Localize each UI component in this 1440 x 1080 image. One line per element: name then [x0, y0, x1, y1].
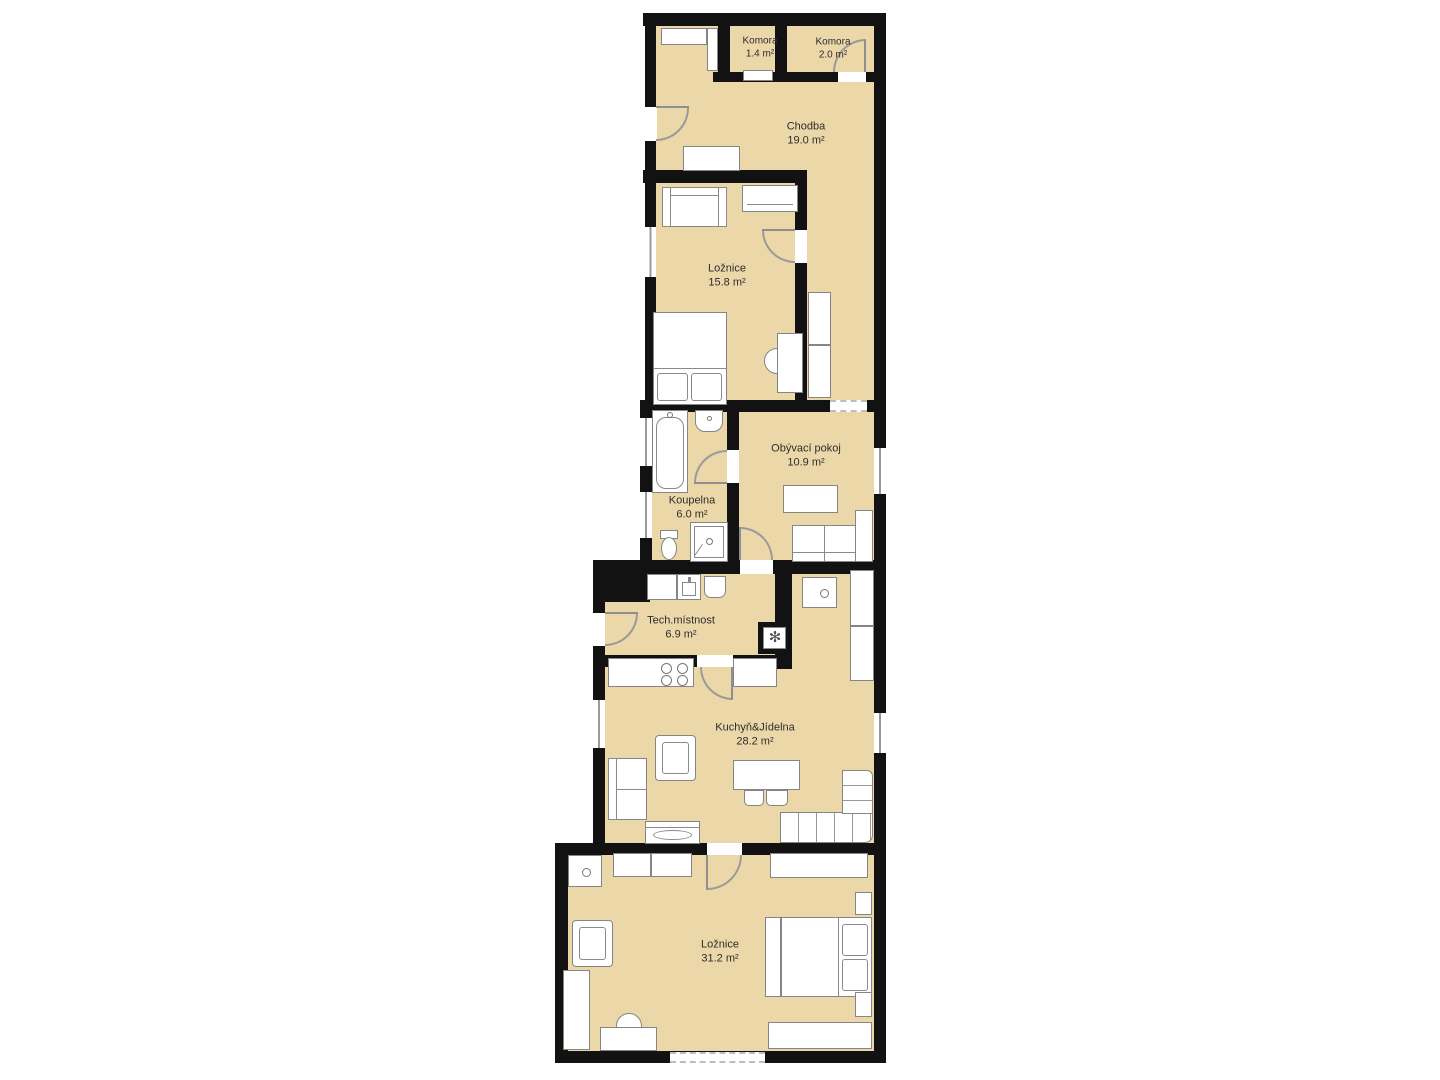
- door-gap-bathroom: [727, 450, 739, 483]
- cabinet: [768, 1022, 872, 1049]
- burner-icon: [677, 675, 688, 686]
- room-name: Ložnice: [708, 262, 746, 276]
- nightstand: [855, 992, 872, 1017]
- room-area: 6.0 m²: [669, 508, 716, 522]
- window-bedroom1-left: [645, 227, 656, 277]
- pillow: [842, 959, 868, 991]
- wardrobe: [808, 345, 831, 398]
- room-name: Tech.místnost: [647, 614, 715, 628]
- blanket-line: [838, 918, 839, 996]
- dining-chair: [766, 790, 788, 806]
- cabinet: [647, 574, 677, 600]
- room-label-chodba: Chodba 19.0 m²: [787, 120, 826, 149]
- door-leaf-tech-entry: [605, 612, 638, 614]
- cabinet: [770, 853, 868, 878]
- wall-top: [643, 13, 886, 26]
- burner-icon: [661, 663, 672, 674]
- cabinet: [651, 853, 692, 877]
- sofa: [608, 758, 647, 820]
- window-living-right: [874, 448, 886, 494]
- floor-plan: ✻: [0, 0, 1440, 1080]
- armchair: [655, 735, 696, 781]
- room-name: Komora: [815, 37, 850, 50]
- room-label-loznice-bot: Ložnice 31.2 m²: [701, 938, 739, 967]
- toilet-bowl: [661, 537, 677, 560]
- window-kitchen-left: [593, 700, 605, 748]
- sofa: [662, 187, 727, 227]
- room-area: 15.8 m²: [708, 276, 746, 290]
- coffee-table: [783, 485, 838, 513]
- door-gap-closet2: [838, 72, 866, 82]
- door-leaf-closet2: [864, 40, 866, 72]
- shower-drain-icon: [706, 538, 713, 545]
- window-bedroom2-bottom: [670, 1052, 765, 1063]
- door-leaf-entry: [656, 106, 689, 108]
- bathtub: [652, 410, 688, 493]
- wardrobe: [808, 292, 831, 345]
- faucet-icon: [688, 577, 691, 583]
- boiler: [802, 577, 837, 608]
- room-label-koupelna: Koupelna 6.0 m²: [669, 494, 716, 523]
- piano: [645, 821, 700, 844]
- burner-icon: [677, 663, 688, 674]
- dresser-top-line: [747, 204, 793, 205]
- room-label-kuchyn: Kuchyň&Jídelna 28.2 m²: [715, 721, 795, 750]
- shower: [690, 522, 728, 562]
- sliding-door-closet1: [743, 70, 773, 81]
- wall-bedroom1-top: [643, 170, 807, 183]
- bed-bench: [765, 917, 781, 997]
- armchair: [572, 920, 613, 967]
- sofa-arm: [662, 187, 671, 227]
- utility-sink: [677, 574, 701, 600]
- door-gap-bedroom2: [707, 843, 742, 855]
- drain-icon: [707, 416, 712, 421]
- desk: [777, 333, 803, 393]
- bed: [781, 917, 872, 997]
- sofa-cushion-line: [617, 789, 646, 790]
- room-name: Ložnice: [701, 938, 739, 952]
- room-name: Kuchyň&Jídelna: [715, 721, 795, 735]
- cabinet: [661, 28, 707, 45]
- door-leaf-bedroom1: [762, 229, 795, 231]
- room-area: 6.9 m²: [647, 628, 715, 642]
- kitchen-counter: [850, 570, 874, 626]
- room-area: 31.2 m²: [701, 952, 739, 966]
- door-gap-tech-entry: [593, 613, 605, 646]
- desk: [600, 1027, 657, 1051]
- sink: [695, 410, 723, 432]
- room-area: 28.2 m²: [715, 735, 795, 749]
- wall-right: [874, 13, 886, 1063]
- stove-dial-icon: [582, 868, 591, 877]
- dresser: [742, 185, 798, 212]
- daybed: [792, 525, 857, 562]
- corner-sofa: [842, 770, 873, 814]
- burner-icon: [661, 675, 672, 686]
- room-label-komora2: Komora 2.0 m²: [815, 37, 850, 62]
- dining-table: [733, 760, 800, 790]
- cabinet: [613, 853, 651, 877]
- pillow: [842, 924, 868, 956]
- nightstand: [855, 892, 872, 915]
- pillow: [691, 373, 722, 401]
- room-name: Chodba: [787, 120, 826, 134]
- boiler-dial-icon: [820, 589, 829, 598]
- sink-bowl: [682, 582, 696, 596]
- piano-curve: [653, 830, 692, 840]
- sofa-back: [608, 758, 617, 820]
- room-label-tech: Tech.místnost 6.9 m²: [647, 614, 715, 643]
- wardrobe: [563, 970, 590, 1050]
- door-leaf-bathroom: [694, 482, 727, 484]
- faucet-icon: [667, 412, 673, 418]
- room-name: Komora: [742, 36, 777, 49]
- bed: [653, 312, 727, 405]
- room-area: 1.4 m²: [742, 48, 777, 61]
- hvac-duct: ✻: [758, 622, 792, 654]
- kitchen-counter: [850, 626, 874, 681]
- door-leaf-living: [739, 527, 741, 560]
- kitchen-counter-stove: [608, 658, 694, 687]
- room-label-loznice-top: Ložnice 15.8 m²: [708, 262, 746, 291]
- piano-lid-line: [646, 827, 699, 828]
- blanket-line: [654, 368, 726, 369]
- door-gap-tech-kitchen: [697, 655, 733, 667]
- opening-hall-living: [830, 400, 867, 412]
- bathtub-inner: [656, 417, 684, 489]
- armchair-seat: [579, 927, 606, 960]
- hvac-fan-icon: ✻: [767, 627, 783, 648]
- sofa-arm: [718, 187, 727, 227]
- room-area: 2.0 m²: [815, 49, 850, 62]
- room-label-obyvaci: Obývací pokoj 10.9 m²: [771, 442, 841, 471]
- pillow: [657, 373, 688, 401]
- kitchen-counter: [733, 658, 777, 687]
- window-kitchen-right: [874, 713, 886, 753]
- room-name: Obývací pokoj: [771, 442, 841, 456]
- door-leaf-bedroom2: [706, 855, 708, 890]
- corner-sofa: [780, 812, 873, 843]
- room-area: 10.9 m²: [771, 456, 841, 470]
- armchair-seat: [662, 742, 689, 774]
- room-area: 19.0 m²: [787, 134, 826, 148]
- daybed-line: [824, 526, 825, 561]
- cabinet: [707, 28, 718, 71]
- door-gap-bedroom1: [795, 230, 807, 263]
- wall-bath-living: [727, 412, 739, 572]
- stove: [568, 855, 602, 887]
- dining-chair: [744, 790, 764, 806]
- daybed-line: [793, 552, 856, 553]
- window-bathroom-left-2: [640, 492, 652, 538]
- wall-closet1-left: [718, 13, 730, 80]
- cabinet: [855, 510, 873, 562]
- laundry-basin: [704, 576, 726, 598]
- room-label-komora1: Komora 1.4 m²: [742, 36, 777, 61]
- room-name: Koupelna: [669, 494, 716, 508]
- window-bathroom-left-1: [640, 418, 652, 466]
- cabinet: [683, 146, 740, 171]
- door-gap-living: [740, 560, 773, 574]
- wall-tech-chunk: [593, 560, 650, 602]
